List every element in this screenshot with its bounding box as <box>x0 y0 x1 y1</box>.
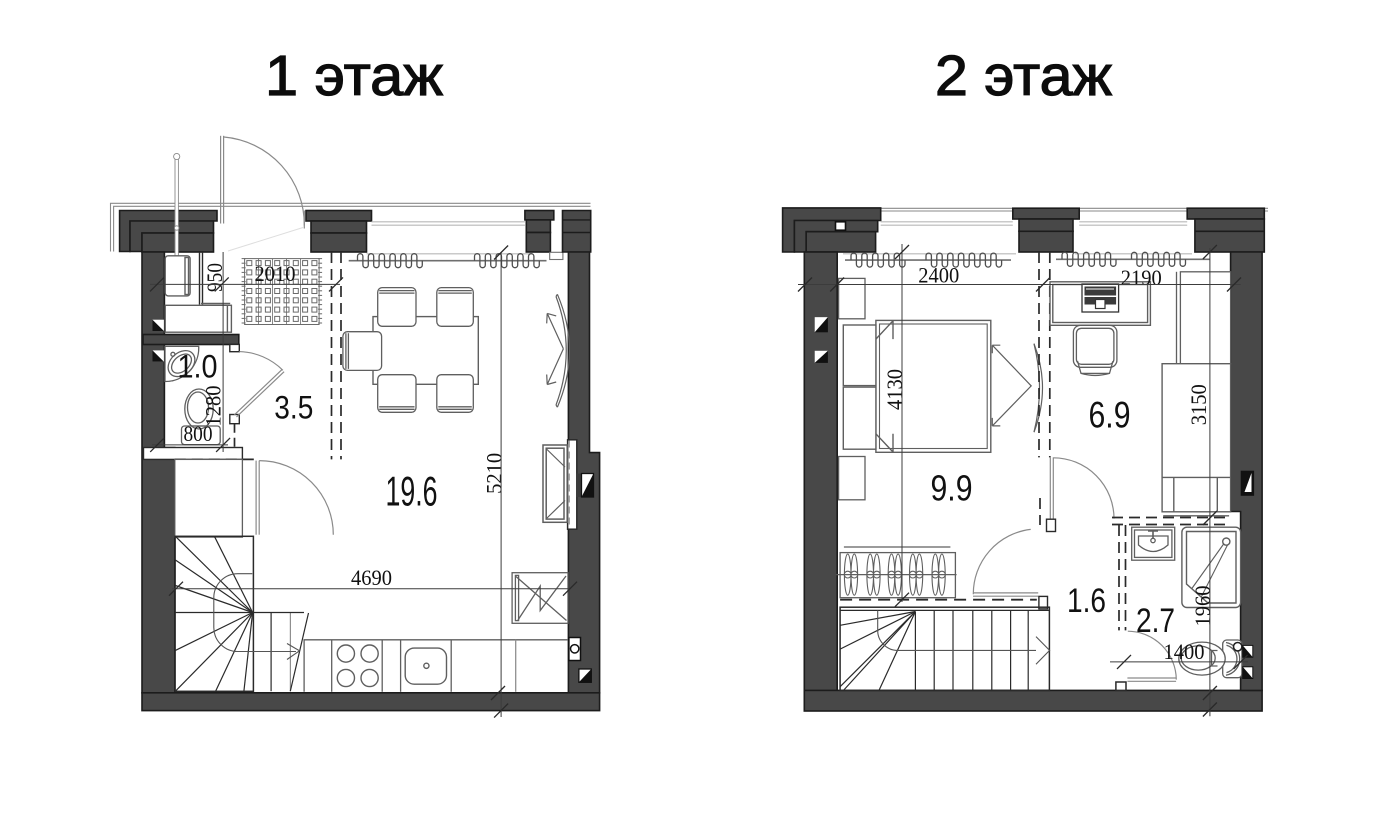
svg-text:3.5: 3.5 <box>274 390 313 426</box>
svg-text:4130: 4130 <box>882 369 907 410</box>
svg-text:1400: 1400 <box>1164 639 1205 664</box>
svg-text:6.9: 6.9 <box>1089 394 1131 435</box>
svg-text:2010: 2010 <box>255 261 296 286</box>
svg-text:1.6: 1.6 <box>1067 582 1106 620</box>
svg-text:2 этаж: 2 этаж <box>935 44 1112 108</box>
svg-text:1960: 1960 <box>1190 586 1215 627</box>
svg-text:19.6: 19.6 <box>386 468 438 515</box>
svg-text:2400: 2400 <box>918 263 959 288</box>
svg-text:3150: 3150 <box>1186 384 1211 425</box>
svg-text:5210: 5210 <box>481 453 506 494</box>
svg-text:1.0: 1.0 <box>178 349 218 385</box>
svg-text:2.7: 2.7 <box>1136 602 1175 640</box>
svg-text:4690: 4690 <box>351 565 392 590</box>
svg-text:1 этаж: 1 этаж <box>265 44 443 108</box>
svg-text:9.9: 9.9 <box>931 468 973 509</box>
svg-text:2190: 2190 <box>1121 265 1162 290</box>
svg-text:800: 800 <box>184 421 213 446</box>
